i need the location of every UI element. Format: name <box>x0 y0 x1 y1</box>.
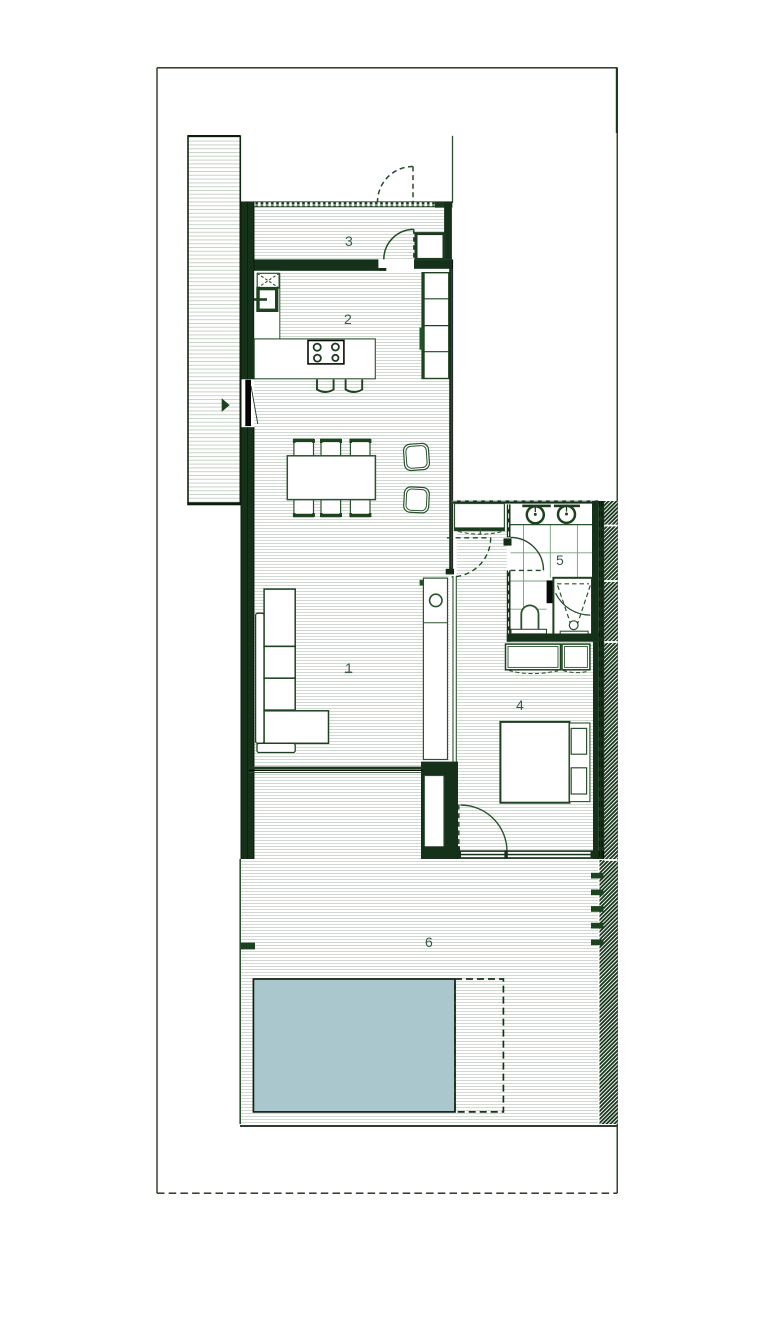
svg-text:1: 1 <box>345 660 353 676</box>
svg-text:5: 5 <box>556 552 564 568</box>
svg-text:4: 4 <box>516 697 524 713</box>
svg-text:6: 6 <box>425 934 433 950</box>
svg-text:2: 2 <box>344 311 352 327</box>
svg-text:3: 3 <box>345 233 353 249</box>
